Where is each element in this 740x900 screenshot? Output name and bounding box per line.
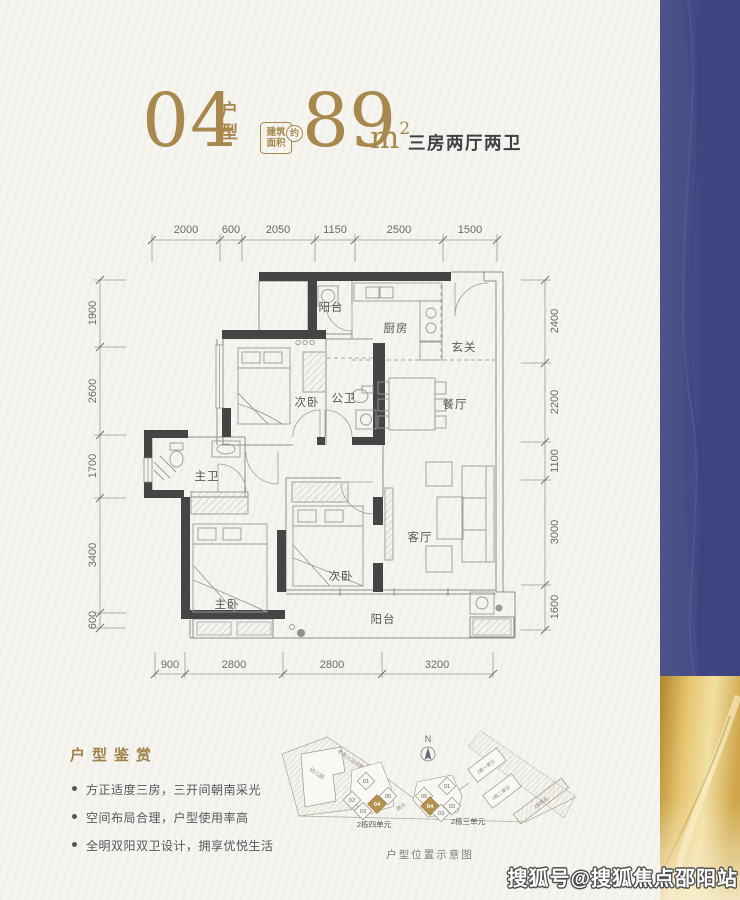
unit-marker-02: 02 — [449, 804, 455, 810]
dim-label: 2000 — [174, 224, 198, 236]
dim-label: 2400 — [549, 309, 560, 333]
room-label-foyer: 玄关 — [452, 340, 477, 354]
feature-item: 全明双阳双卫设计，拥享优悦生活 — [70, 837, 300, 854]
dim-label: 1100 — [549, 449, 560, 473]
room-label-bedroom3: 次卧 — [329, 569, 354, 583]
room-label-master-bedroom: 主卧 — [215, 598, 240, 611]
unit-type-label: 户 型 — [221, 100, 239, 144]
unit-type-char-1: 户 — [221, 100, 239, 122]
dim-label: 1900 — [87, 301, 99, 325]
room-label-balcony-bottom: 阳台 — [371, 612, 396, 626]
dim-label: 1600 — [549, 595, 560, 619]
unit-marker-05: 05 — [385, 794, 391, 800]
unit-marker-04-highlight: 04 — [427, 804, 434, 810]
compass-icon: N — [421, 734, 435, 761]
dim-label: 1150 — [323, 224, 347, 236]
area-approx-circle: 约 — [286, 125, 303, 142]
plan-outline — [152, 272, 515, 638]
area-unit: m2 — [370, 119, 410, 156]
dim-label: 1700 — [87, 454, 99, 478]
dim-label: 3000 — [549, 520, 560, 544]
dim-label: 3400 — [87, 543, 99, 567]
unit-marker-05: 05 — [421, 794, 427, 800]
dim-label: 900 — [161, 659, 179, 671]
unit-marker-04-highlight: 04 — [374, 802, 381, 808]
unit-marker-03: 03 — [438, 811, 444, 817]
dim-label: 3200 — [425, 659, 449, 671]
business-label: 商业 — [395, 801, 407, 813]
room-label-kitchen: 厨房 — [384, 322, 409, 335]
room-labels: 阳台 厨房 玄关 次卧 公卫 餐厅 主卫 主卧 次卧 客厅 阳台 — [195, 300, 477, 626]
decor-band-blue — [660, 0, 740, 676]
dimension-chain-left: 1900 2600 1700 3400 600 — [87, 276, 126, 632]
unit-marker-02: 02 — [349, 798, 355, 804]
unit-marker-01: 01 — [444, 784, 450, 790]
cluster-left-label: 2栋四单元 — [357, 819, 392, 829]
plan-dashed-lines — [190, 285, 496, 492]
area-badge-line2: 面积 — [266, 138, 285, 149]
dim-label: 1500 — [458, 224, 482, 236]
plan-furniture — [154, 283, 503, 637]
dimension-chain-bottom: 900 2800 2800 3200 — [151, 652, 497, 678]
site-plan: N 老年人日间照料中心 幼儿园 2栋一单元 2栋二单元 1栋商业 商业 — [280, 728, 580, 874]
unit-marker-03: 03 — [360, 809, 366, 815]
floor-plan: 2000 600 2050 1150 2500 1500 1900 2600 1… — [85, 205, 560, 710]
dim-label: 2600 — [87, 379, 99, 403]
appreciation-title: 户型鉴赏 — [70, 744, 300, 765]
feature-item: 空间布局合理，户型使用率高 — [70, 809, 300, 826]
site-plan-caption: 户型位置示意图 — [386, 848, 474, 861]
room-label-balcony-top: 阳台 — [319, 300, 344, 314]
dim-label: 600 — [222, 224, 240, 236]
compass-label: N — [425, 734, 432, 744]
room-label-public-bath: 公卫 — [332, 392, 357, 405]
dim-label: 2500 — [387, 224, 411, 236]
dim-label: 2200 — [549, 390, 560, 414]
dimension-chain-right: 2400 2200 1100 3000 1600 — [521, 276, 560, 634]
room-label-master-bath: 主卫 — [195, 470, 220, 483]
appreciation-section: 户型鉴赏 方正适度三房，三开间朝南采光 空间布局合理，户型使用率高 全明双阳双卫… — [70, 744, 300, 865]
watermark: 搜狐号@搜狐焦点邵阳站 — [507, 862, 738, 891]
dim-label: 2050 — [266, 224, 290, 236]
room-label-dining: 餐厅 — [443, 397, 468, 411]
unit-marker-01: 01 — [363, 779, 369, 785]
room-label-bedroom2: 次卧 — [295, 395, 320, 409]
unit-type-char-2: 型 — [221, 122, 239, 144]
dimension-chain-top: 2000 600 2050 1150 2500 1500 — [148, 224, 501, 262]
flyer-page: 04 户 型 建筑 面积 约 89 m2 三房两厅两卫 — [0, 0, 740, 900]
dim-label: 600 — [87, 611, 99, 629]
cluster-right-label: 2栋三单元 — [451, 816, 486, 826]
room-label-living: 客厅 — [408, 530, 433, 544]
area-badge-line1: 建筑 — [266, 127, 285, 138]
dim-label: 2800 — [320, 659, 344, 671]
dim-label: 2800 — [222, 659, 246, 671]
feature-item: 方正适度三房，三开间朝南采光 — [70, 781, 300, 798]
building-2-2: 2栋二单元 — [483, 774, 521, 808]
feature-list: 方正适度三房，三开间朝南采光 空间布局合理，户型使用率高 全明双阳双卫设计，拥享… — [70, 781, 300, 854]
layout-summary: 三房两厅两卫 — [408, 130, 522, 155]
